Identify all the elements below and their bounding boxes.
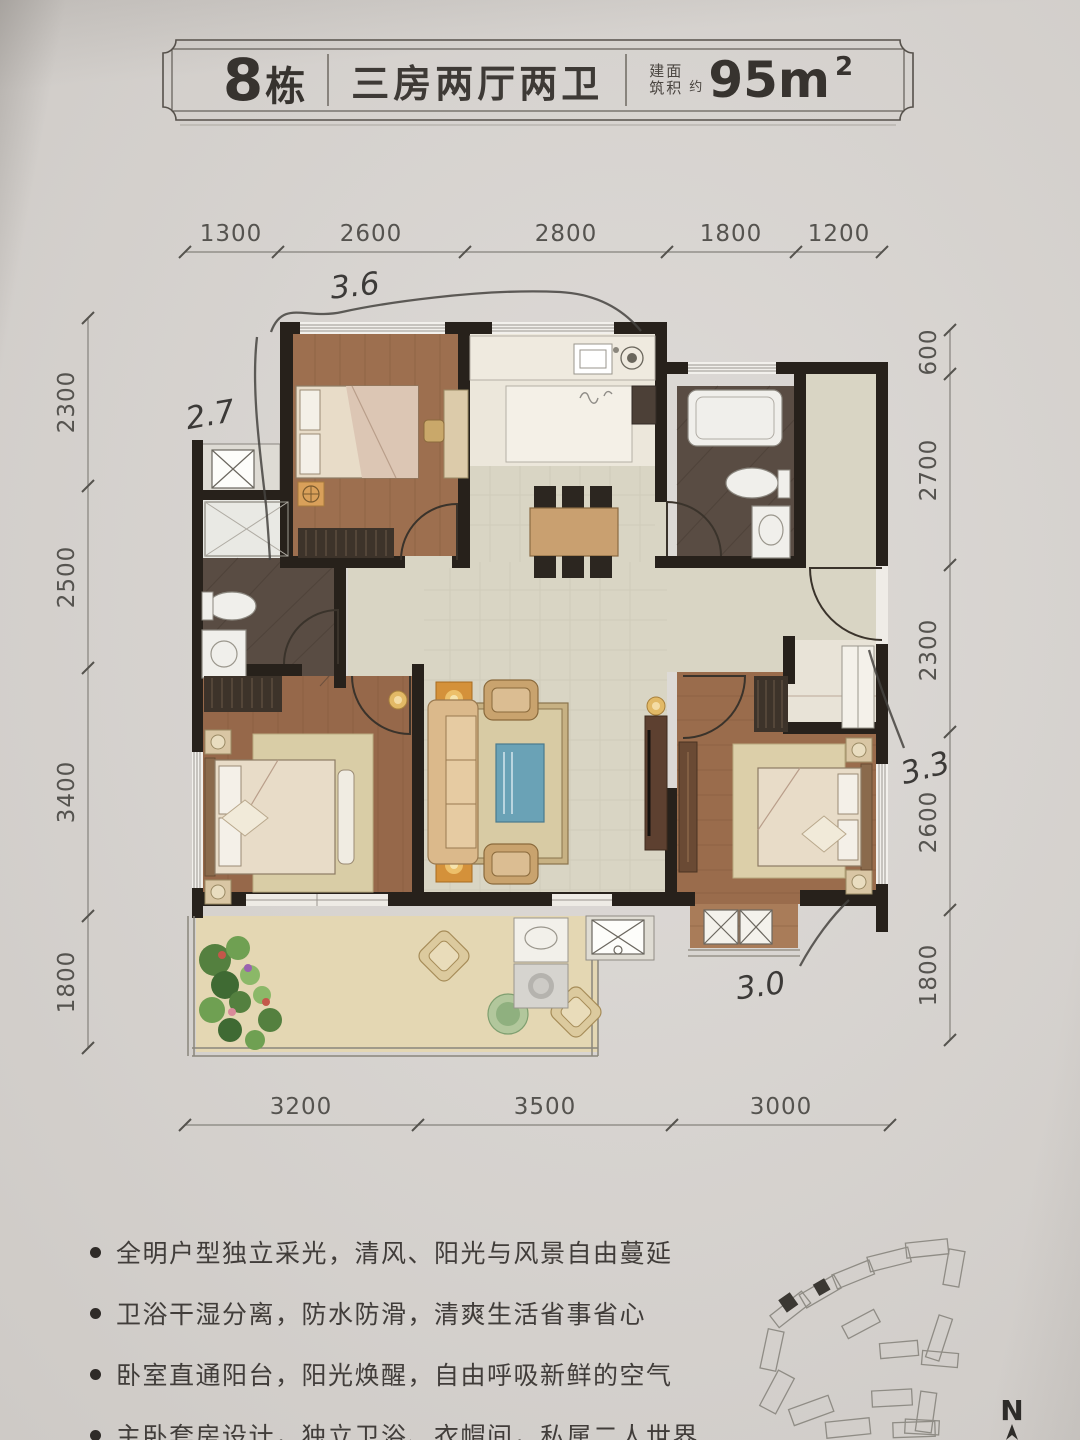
bullet-icon [90,1369,101,1380]
feature-item: 全明户型独立采光，清风、阳光与风景自由蔓延 [90,1234,699,1270]
ac-platform-left-symbol [212,450,254,488]
building-number: 8 [223,46,263,114]
dim-label: 3400 [54,761,80,824]
dim-label: 2300 [54,371,80,434]
area-block: 建面 筑积 约 95m 2 [649,55,853,105]
dining-set [530,486,618,578]
area-label-line1: 建面 [649,63,683,80]
dim-label: 2800 [535,221,598,247]
feature-item: 主卧套房设计，独立卫浴、衣帽间，私属二人世界 [90,1417,699,1440]
floorplan-page: 1300 2600 2800 1800 1200 2300 2500 3400 … [0,0,1080,1440]
banner-divider [625,54,627,106]
site-plan [760,1239,965,1438]
bullet-icon [90,1430,101,1440]
feature-text: 卧室直通阳台，阳光焕醒，自由呼吸新鲜的空气 [116,1356,673,1392]
banner-divider [327,54,329,106]
dim-label: 2500 [54,546,80,609]
floorplan-svg: 1300 2600 2800 1800 1200 2300 2500 3400 … [0,0,1080,1440]
handwritten-bottom: 3.0 [734,965,788,1008]
dim-label: 3000 [750,1094,813,1120]
layout-type: 三房两厅两卫 [351,53,603,108]
handwritten-right: 3.3 [897,745,954,793]
area-label: 建面 筑积 [649,63,683,98]
feature-list: 全明户型独立采光，清风、阳光与风景自由蔓延 卫浴干湿分离，防水防滑，清爽生活省事… [90,1234,699,1440]
highlighted-building [813,1278,831,1296]
area-approx: 约 [689,76,702,95]
handwritten-top: 3.6 [329,266,382,307]
feature-text: 全明户型独立采光，清风、阳光与风景自由蔓延 [116,1234,673,1270]
area-value: 95m [708,55,830,105]
entry-floor [806,374,876,572]
compass: N [1000,1394,1023,1440]
dim-label: 1300 [200,221,263,247]
dim-label: 1800 [54,951,80,1014]
building-name: 8栋 [223,51,305,109]
bullet-icon [90,1247,101,1258]
feature-item: 卫浴干湿分离，防水防滑，清爽生活省事省心 [90,1295,699,1331]
feature-text: 卫浴干湿分离，防水防滑，清爽生活省事省心 [116,1295,646,1331]
dim-label: 2300 [916,619,942,682]
dim-label: 2600 [340,221,403,247]
pen-stroke-bottom [800,900,849,966]
feature-item: 卧室直通阳台，阳光焕醒，自由呼吸新鲜的空气 [90,1356,699,1392]
dim-label: 2600 [916,791,942,854]
bullet-icon [90,1308,101,1319]
dim-label: 1200 [808,221,871,247]
dim-label: 2700 [916,439,942,502]
dim-label: 3200 [270,1094,333,1120]
laundry-sink [514,918,568,962]
area-label-line2: 筑积 [649,80,683,97]
area-exponent: 2 [835,52,853,82]
building-suffix: 栋 [265,64,305,110]
handwritten-left: 2.7 [183,393,238,437]
feature-text: 主卧套房设计，独立卫浴、衣帽间，私属二人世界 [116,1417,699,1440]
title-banner: 8栋 三房两厅两卫 建面 筑积 约 95m 2 [163,40,913,120]
dim-label: 3500 [514,1094,577,1120]
entry-cabinet [842,646,874,728]
dim-label: 600 [916,329,942,376]
compass-label: N [1000,1394,1023,1427]
dim-label: 1800 [700,221,763,247]
dim-label: 1800 [916,944,942,1007]
